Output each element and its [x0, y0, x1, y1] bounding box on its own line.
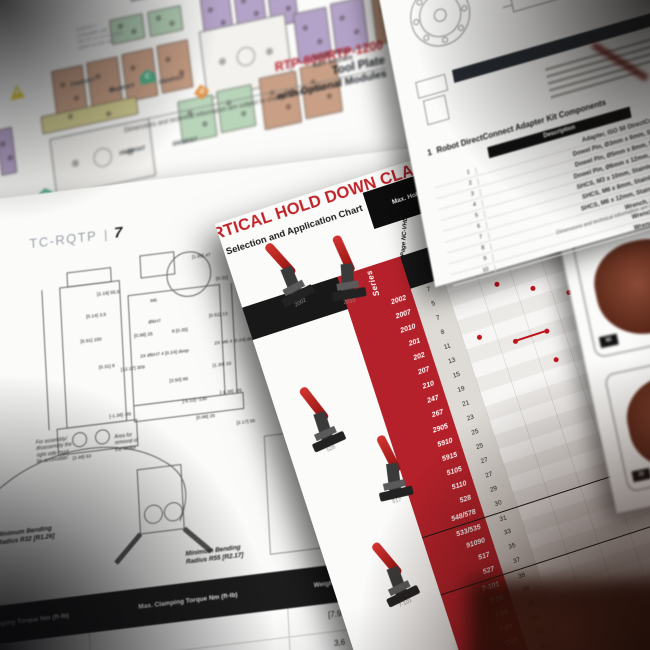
- capacity-dot: [543, 327, 550, 334]
- part-number-chip: 83: [599, 334, 619, 349]
- a-badge-icon: A: [9, 83, 25, 100]
- dimension-label: M6: [150, 298, 157, 304]
- kit-number: 1: [427, 148, 433, 158]
- catalog-collage-scene: FH/FP/FTPH/PP/PTVN/VP/VTHN/HP/HTSN/SP/ST…: [0, 0, 650, 650]
- module-label: SN/SP/ST: [172, 137, 198, 148]
- toggle-clamp-photo: 528: [280, 376, 359, 468]
- motor-removal-note: Area for removal of the motor: [114, 432, 138, 454]
- capacity-dot: [553, 356, 560, 363]
- assembly-access-note: For assembly/ disassembly the right side…: [36, 436, 73, 465]
- capacity-dot: [493, 281, 500, 288]
- spec-col-partial: Max. Clamping Torque Nm (ft-lb): [0, 610, 89, 636]
- module-block: [0, 127, 17, 176]
- part-photo: [587, 229, 650, 343]
- module-label: HH/HP/HT: [130, 0, 157, 5]
- corner-photo-tint: [470, 580, 650, 650]
- flange-drawing: [387, 0, 501, 70]
- part-photo-box: 23: [604, 347, 650, 492]
- capacity-dot: [529, 285, 536, 292]
- part-number-chip: 23: [631, 468, 650, 483]
- toggle-clamp-photo: 7-101: [352, 531, 433, 624]
- capacity-dot: [476, 334, 483, 341]
- part-photo: [619, 363, 650, 477]
